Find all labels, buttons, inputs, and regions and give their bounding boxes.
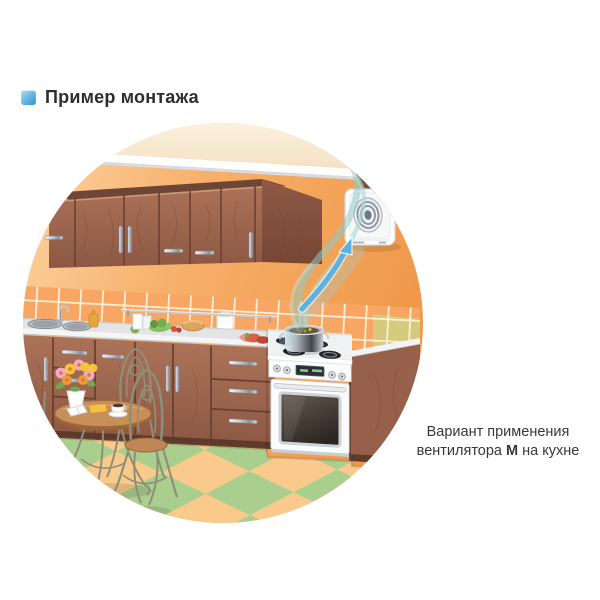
- blue-square-bullet-icon: [21, 90, 36, 105]
- lower-cabinets: [23, 335, 275, 449]
- fan-model-name: М: [506, 443, 518, 459]
- kitchen-illustration-circle: [23, 123, 423, 523]
- caption-line1: Вариант применения: [398, 423, 598, 442]
- caption-line2: вентилятора М на кухне: [398, 442, 598, 461]
- section-title: Пример монтажа: [45, 87, 199, 108]
- catalog-page-fragment: Пример монтажа: [0, 0, 600, 600]
- milk-carton: [133, 314, 142, 329]
- section-header: Пример монтажа: [21, 87, 199, 108]
- upper-cabinets: [45, 179, 322, 268]
- oil-bottle: [89, 314, 98, 327]
- bread-loaf: [182, 321, 204, 331]
- kitchen-illustration: [23, 123, 423, 523]
- illustration-caption: Вариант применения вентилятора М на кухн…: [398, 423, 598, 460]
- oven-door: [271, 379, 349, 454]
